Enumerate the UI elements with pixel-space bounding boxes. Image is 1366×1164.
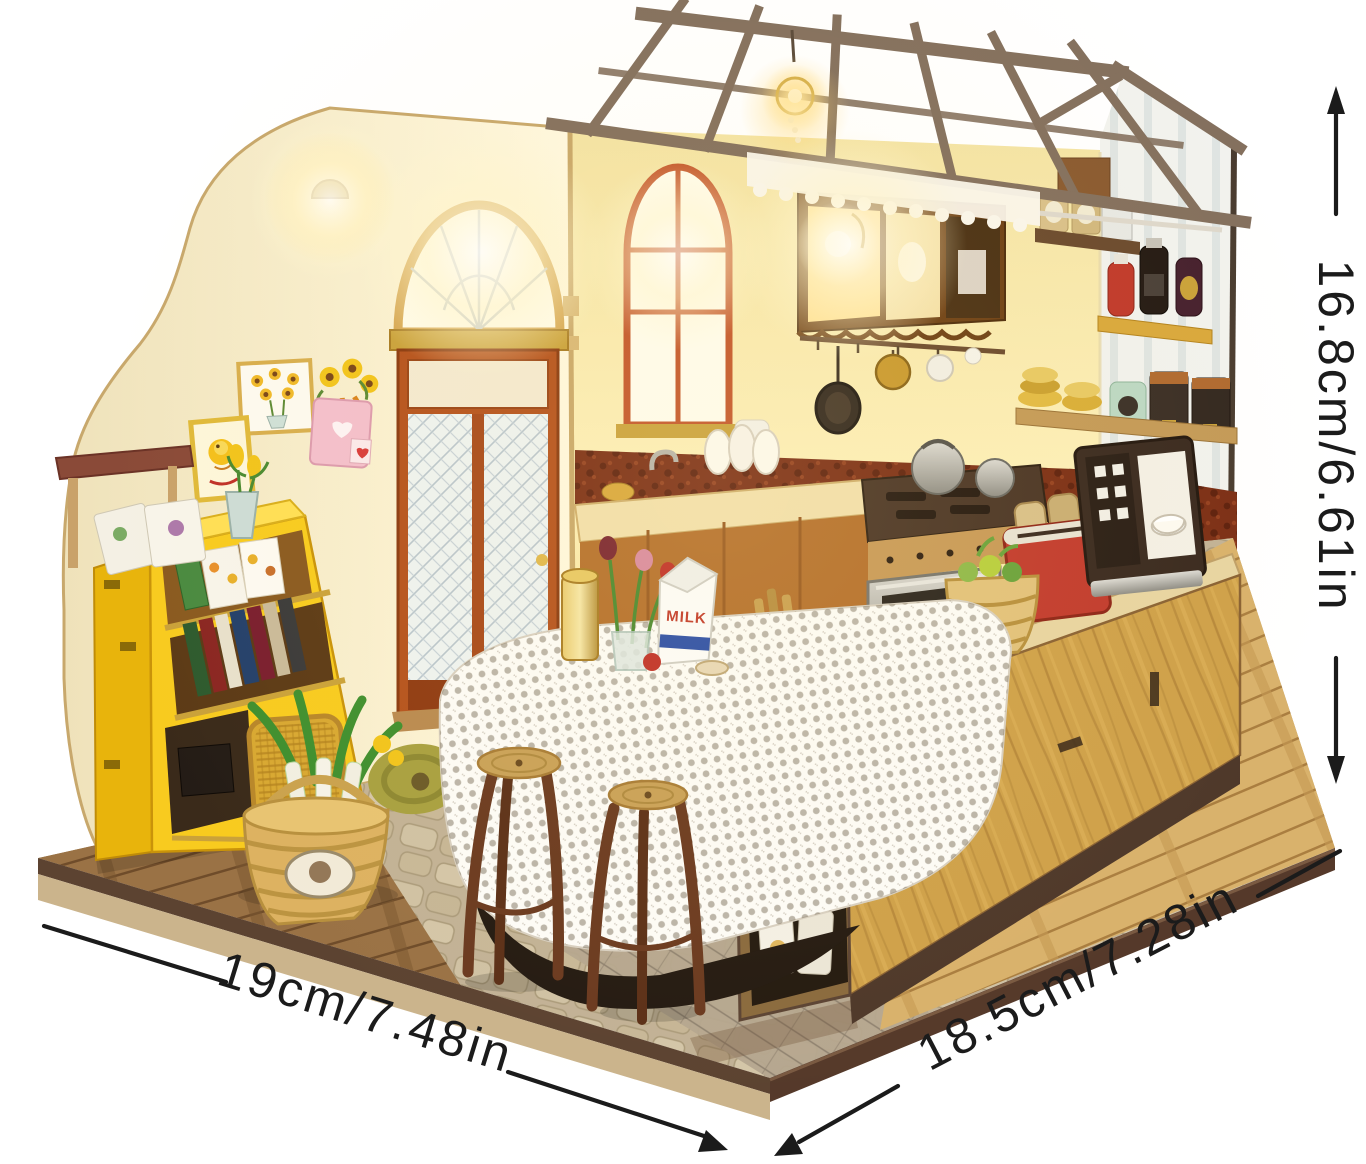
height-label: 16.8cm/6.61in bbox=[1308, 259, 1364, 612]
product-photo: MILK 16.8cm/6 bbox=[0, 0, 1366, 1164]
dimension-arrow-southeast-icon bbox=[698, 1130, 728, 1152]
dimension-arrow-down-icon bbox=[1327, 756, 1345, 784]
dimension-arrow-southwest-icon bbox=[774, 1133, 803, 1156]
dimension-arrow-up-icon bbox=[1327, 86, 1345, 114]
height-dimension: 16.8cm/6.61in bbox=[1308, 86, 1364, 784]
dollhouse-illustration: MILK 16.8cm/6 bbox=[0, 0, 1366, 1164]
